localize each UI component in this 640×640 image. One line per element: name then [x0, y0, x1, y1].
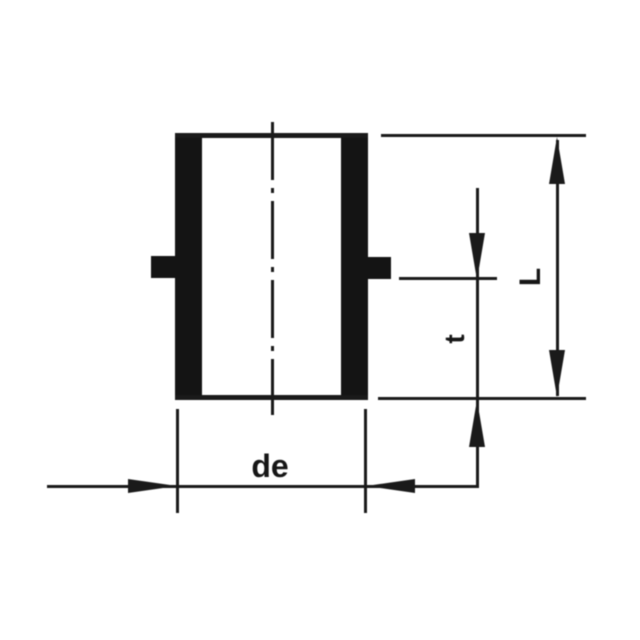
label-t: t: [435, 319, 475, 359]
arrowhead-right-icon: [128, 479, 177, 493]
label-de: de: [240, 446, 300, 486]
arrowhead-down-icon: [549, 350, 565, 397]
body-left-wall: [175, 133, 202, 400]
extension-line-de-left: [176, 409, 179, 513]
arrowhead-up-icon: [469, 400, 485, 447]
label-L: L: [511, 257, 551, 297]
extension-line-de-right: [364, 409, 367, 513]
right-tab: [366, 257, 391, 279]
arrowhead-up-icon: [549, 137, 565, 184]
left-tab: [151, 256, 177, 278]
arrowhead-left-icon: [366, 479, 415, 493]
body-right-wall: [341, 133, 368, 400]
centerline: [271, 122, 274, 415]
arrowhead-down-icon: [469, 233, 485, 280]
drawing-canvas: L t de: [0, 0, 640, 640]
